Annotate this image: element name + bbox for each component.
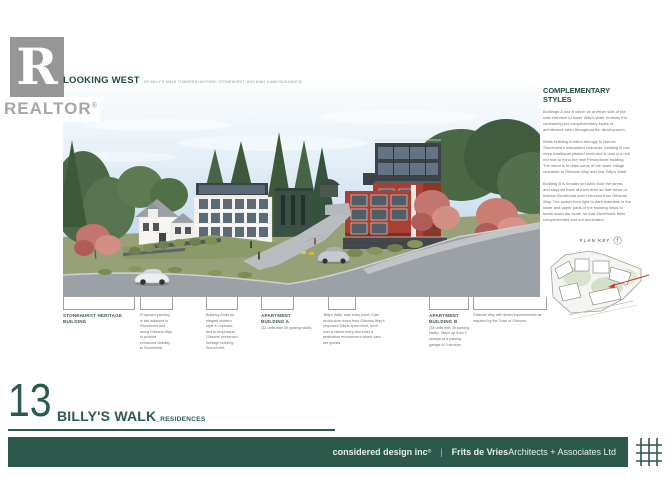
plan-key: PLAN KEY [545,236,657,324]
leader-bracket [63,297,135,310]
realtor-r-icon: R [16,42,58,92]
rendering-image [63,85,540,297]
presentation-board: R REALTOR® LOOKING WESTOF BILLY'S WALK T… [0,0,667,500]
annotation-gibsons-way: Gibsons Way with street improvements as … [473,297,547,324]
annotation-label: APARTMENT BUILDING B [429,313,469,325]
project-name: BILLY'S WALK [57,408,156,424]
styles-paragraph-3: Building B is broadly set back from the … [543,181,631,223]
annotation-planting: Proposed planting is low adjacent to Sto… [140,297,173,352]
sheet-number: 13 [8,377,51,423]
leader-bracket [261,297,294,310]
architect-suffix: Architects + Associates Ltd [508,447,616,457]
footer-bar: considered design inc®|Frits de Vries Ar… [8,437,628,467]
styles-paragraph-1: Buildings A and B which sit at either si… [543,109,631,133]
leader-bracket [328,297,356,310]
project-title: BILLY'S WALK_RESIDENCES [57,408,206,426]
annotation-building-a-style: Building A has an elegant modern style i… [206,297,238,352]
annotation-text: Gibsons Way with street improvements as … [473,313,547,324]
architect-name: Frits de Vries [452,447,509,457]
annotation-stonehurst: STONEHURST HERITAGE BUILDING [63,297,135,325]
footer-divider: | [440,447,442,457]
annotation-building-a: APARTMENT BUILDING A (32 units with 39 p… [261,297,313,331]
complementary-styles-panel: COMPLEMENTARY STYLES Buildings A and B w… [543,86,631,229]
building-a [194,183,272,244]
north-arrow-icon [613,236,622,245]
styles-paragraph-2: While building A refers strongly to hist… [543,139,631,175]
view-title: LOOKING WESTOF BILLY'S WALK TOWARDS HIST… [63,70,302,88]
view-subtitle: OF BILLY'S WALK TOWARDS HISTORIC STONEHU… [144,80,302,84]
annotation-text: (32 units with 39 parking stalls) [261,326,313,332]
annotation-entry-point: 'Billy's Walk' east entry point. Cars wo… [323,297,385,346]
leader-bracket [429,297,469,310]
annotation-label: STONEHURST HERITAGE BUILDING [63,313,135,325]
annotation-label: APARTMENT BUILDING A [261,313,313,325]
architect-grid-logo-icon [634,436,664,473]
leader-bracket [473,297,547,310]
design-firm-name: considered design inc [333,447,428,457]
styles-heading: COMPLEMENTARY STYLES [543,86,631,104]
annotation-text: Building A has an elegant modern style i… [206,313,238,352]
leader-bracket [206,297,238,310]
annotation-text: 'Billy's Walk' east entry point. Cars wo… [323,313,385,346]
registered-mark: ® [428,449,432,455]
plan-key-header: PLAN KEY [545,236,657,245]
title-rule [8,429,335,431]
annotation-building-b: APARTMENT BUILDING B (35 units with 39 p… [429,297,469,348]
realtor-wordmark: REALTOR® [4,97,100,122]
registered-mark: ® [92,102,97,109]
rendering-scene-svg [63,85,540,297]
plan-key-label: PLAN KEY [580,238,611,243]
view-title-text: LOOKING WEST [63,75,140,86]
building-dark-annex [275,188,313,236]
leader-bracket [140,297,173,310]
realtor-logo-block: R [10,37,64,99]
annotation-text: Proposed planting is low adjacent to Sto… [140,313,173,352]
annotation-text: (35 units with 39 parking stalls). Steps… [429,326,469,348]
project-suffix: _RESIDENCES [156,416,205,423]
plan-key-map [545,247,657,319]
